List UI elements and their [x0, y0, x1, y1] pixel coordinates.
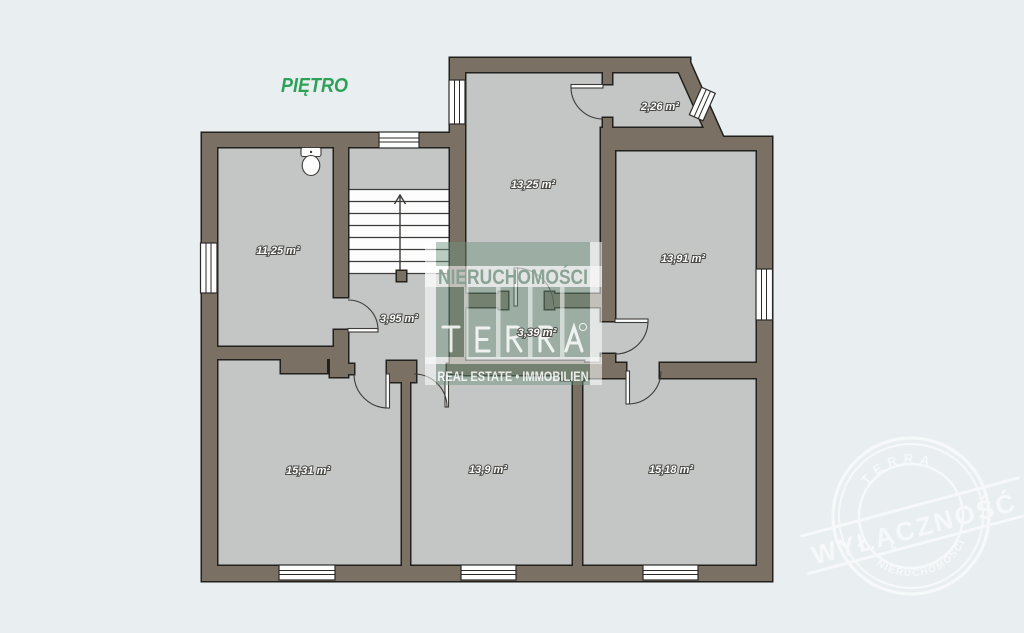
svg-text:15,31 m²: 15,31 m²	[286, 465, 330, 477]
svg-text:15,18 m²: 15,18 m²	[649, 464, 693, 476]
svg-text:13,9 m²: 13,9 m²	[469, 464, 507, 476]
svg-text:NIERUCHOMOŚCI: NIERUCHOMOŚCI	[438, 263, 588, 289]
svg-text:2,26 m²: 2,26 m²	[640, 101, 679, 113]
svg-text:13,25 m²: 13,25 m²	[511, 179, 555, 191]
svg-text:13,91 m²: 13,91 m²	[661, 253, 705, 265]
svg-text:PIĘTRO: PIĘTRO	[281, 75, 348, 97]
svg-text:11,25 m²: 11,25 m²	[256, 245, 300, 257]
svg-text:3,95 m²: 3,95 m²	[380, 313, 418, 325]
svg-text:REAL ESTATE • IMMOBILIEN: REAL ESTATE • IMMOBILIEN	[437, 369, 588, 385]
svg-text:3,39 m²: 3,39 m²	[518, 327, 557, 339]
